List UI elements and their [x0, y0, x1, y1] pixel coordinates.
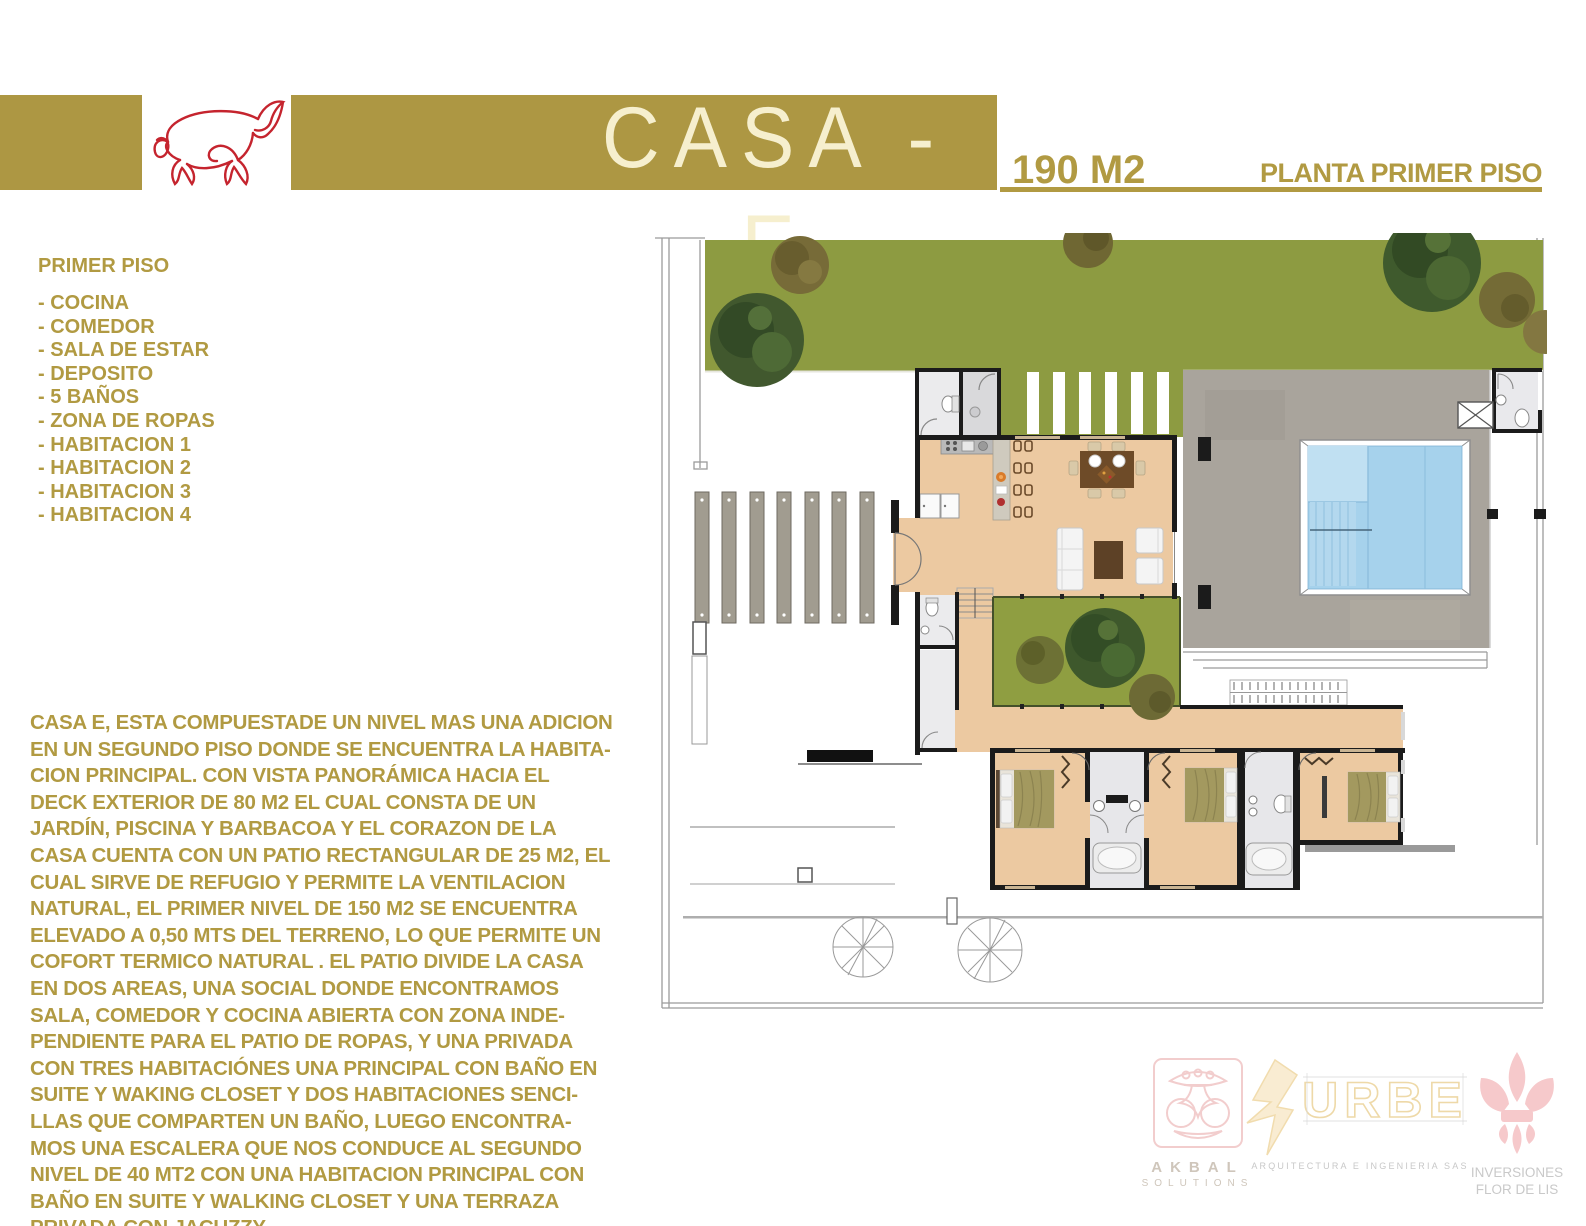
list-item: - HABITACION 1: [38, 434, 458, 458]
ensuite-bathroom: [1245, 752, 1293, 888]
deck-steps: [1183, 652, 1487, 668]
service-bathrooms-top: [915, 368, 1001, 437]
list-item: - 5 BAÑOS: [38, 386, 458, 410]
akbal-name: AKBAL: [1140, 1159, 1255, 1176]
urbe-bolt-icon: URBE: [1245, 1055, 1475, 1160]
main-exterior-stairs: [1230, 680, 1347, 705]
flor-de-lis-logo: INVERSIONES FLOR DE LIS: [1462, 1050, 1572, 1198]
fleur-de-lis-icon: [1467, 1050, 1567, 1162]
header-underline: [1000, 187, 1542, 192]
page-title: CASA - E: [560, 84, 990, 192]
house-description: CASA E, ESTA COMPUESTADE UN NIVEL MAS UN…: [30, 710, 630, 1226]
list-item: - SALA DE ESTAR: [38, 339, 458, 363]
akbal-mask-icon: [1140, 1055, 1255, 1155]
wood-deck-planks: [695, 492, 874, 623]
brochure-page: CASA - E 190 M2 PLANTA PRIMER PISO PRIME…: [0, 0, 1586, 1226]
floor-plan: [655, 233, 1547, 1013]
plan-tree-symbol: [958, 918, 1022, 982]
list-item: - ZONA DE ROPAS: [38, 410, 458, 434]
patio-garden: [993, 594, 1180, 720]
list-item: - COCINA: [38, 292, 458, 316]
side-yard-details: [690, 622, 922, 884]
list-item: - COMEDOR: [38, 316, 458, 340]
swimming-pool: [1300, 440, 1470, 595]
list-item: - HABITACION 3: [38, 481, 458, 505]
urbe-tagline: ARQUITECTURA E INGENIERIA SAS: [1245, 1161, 1475, 1171]
laundry-and-bath: [920, 595, 955, 748]
svg-text:URBE: URBE: [1302, 1072, 1468, 1128]
plan-tree-symbol: [833, 917, 893, 977]
flor-line2: FLOR DE LIS: [1462, 1181, 1572, 1198]
plan-type-label: PLANTA PRIMER PISO: [1000, 158, 1542, 189]
feature-list-heading: PRIMER PISO: [38, 255, 458, 278]
list-item: - HABITACION 2: [38, 457, 458, 481]
list-item: - HABITACION 4: [38, 504, 458, 528]
first-floor-feature-list: PRIMER PISO - COCINA - COMEDOR - SALA DE…: [38, 255, 458, 528]
shared-bathroom: [1090, 752, 1144, 888]
flor-line1: INVERSIONES: [1462, 1164, 1572, 1181]
urbe-logo: URBE ARQUITECTURA E INGENIERIA SAS: [1245, 1055, 1475, 1171]
akbal-logo: AKBAL SOLUTIONS: [1140, 1055, 1255, 1189]
bull-logo-box: [142, 95, 291, 190]
list-item: - DEPOSITO: [38, 363, 458, 387]
akbal-subtitle: SOLUTIONS: [1140, 1178, 1255, 1189]
bull-line-logo-icon: [142, 95, 291, 190]
